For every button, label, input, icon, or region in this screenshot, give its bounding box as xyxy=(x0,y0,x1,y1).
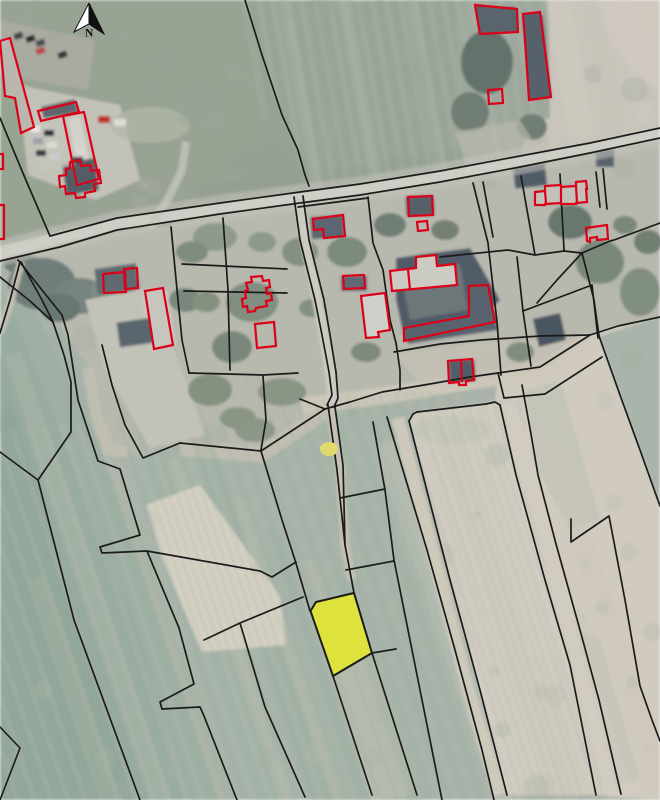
svg-text:N: N xyxy=(85,28,94,40)
